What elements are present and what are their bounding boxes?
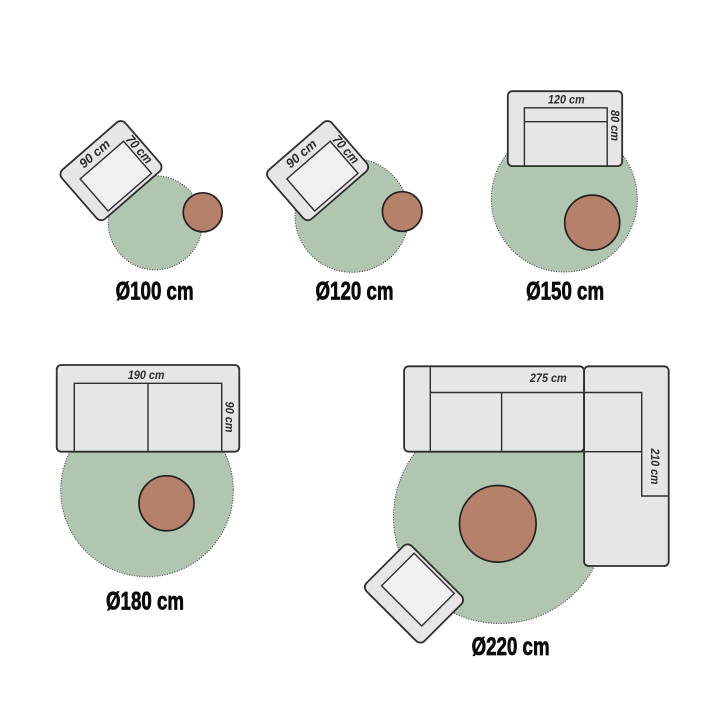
svg-text:Ø150 cm: Ø150 cm (526, 277, 604, 305)
svg-text:210 cm: 210 cm (648, 448, 662, 485)
svg-text:Ø180 cm: Ø180 cm (106, 588, 184, 616)
svg-text:190 cm: 190 cm (128, 368, 165, 382)
svg-text:Ø100 cm: Ø100 cm (116, 277, 194, 305)
svg-text:275 cm: 275 cm (529, 371, 567, 385)
svg-text:80 cm: 80 cm (608, 110, 622, 141)
svg-text:90 cm: 90 cm (223, 402, 237, 433)
svg-text:120 cm: 120 cm (548, 93, 585, 107)
svg-text:Ø120 cm: Ø120 cm (316, 277, 394, 305)
svg-text:Ø220 cm: Ø220 cm (472, 633, 550, 661)
